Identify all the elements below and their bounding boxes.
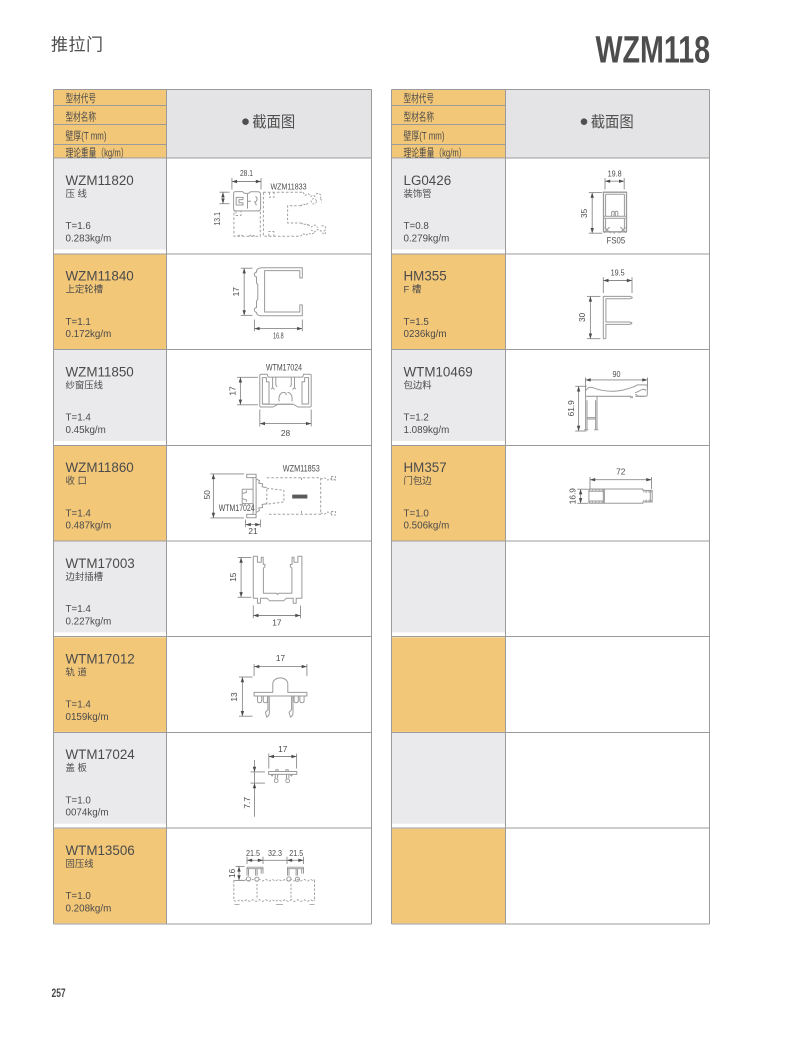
svg-text:型材名称: 型材名称 [66, 109, 97, 123]
svg-text:型材代号: 型材代号 [404, 91, 435, 105]
svg-text:型材代号: 型材代号 [66, 91, 97, 105]
svg-text:0236kg/m: 0236kg/m [404, 329, 447, 340]
svg-text:0159kg/m: 0159kg/m [66, 712, 109, 723]
svg-text:盖 板: 盖 板 [66, 762, 88, 773]
svg-text:WZM11860: WZM11860 [66, 460, 134, 475]
svg-text:0.227kg/m: 0.227kg/m [66, 616, 112, 627]
svg-text:T=1.4: T=1.4 [66, 508, 92, 519]
svg-text:28.1: 28.1 [240, 168, 253, 178]
svg-text:型材名称: 型材名称 [404, 109, 435, 123]
svg-text:包边料: 包边料 [404, 379, 433, 390]
svg-text:72: 72 [616, 467, 626, 477]
svg-text:WTM10469: WTM10469 [404, 364, 473, 379]
svg-text:WTM13506: WTM13506 [66, 843, 135, 858]
svg-text:壁厚(T mm): 壁厚(T mm) [404, 129, 445, 143]
svg-text:61.9: 61.9 [566, 400, 576, 417]
svg-text:T=1.1: T=1.1 [66, 317, 91, 328]
svg-text:1.089kg/m: 1.089kg/m [404, 425, 450, 436]
svg-text:16.8: 16.8 [273, 331, 284, 341]
svg-text:T=1.5: T=1.5 [404, 317, 430, 328]
svg-text:16: 16 [227, 868, 237, 878]
svg-text:17: 17 [272, 618, 282, 628]
svg-text:21.5: 21.5 [289, 848, 303, 858]
svg-text:WTM17024: WTM17024 [66, 747, 136, 762]
svg-text:压 线: 压 线 [66, 188, 88, 199]
svg-text:理论重量（kg/m）: 理论重量（kg/m） [66, 145, 129, 159]
svg-text:16.9: 16.9 [568, 488, 578, 505]
svg-text:WZM11850: WZM11850 [66, 364, 134, 379]
svg-text:32.3: 32.3 [268, 848, 282, 858]
svg-text:T=1.4: T=1.4 [66, 700, 92, 711]
svg-text:21.5: 21.5 [246, 848, 260, 858]
svg-text:0.45kg/m: 0.45kg/m [66, 425, 106, 436]
svg-text:90: 90 [613, 369, 621, 379]
svg-text:35: 35 [579, 208, 589, 218]
svg-text:15: 15 [228, 572, 238, 582]
svg-text:T=1.4: T=1.4 [66, 604, 92, 615]
svg-text:WZM11833: WZM11833 [271, 181, 307, 191]
svg-text:FS05: FS05 [607, 236, 626, 246]
svg-text:WZM11820: WZM11820 [66, 173, 134, 188]
svg-text:截面图: 截面图 [252, 114, 295, 131]
svg-text:21: 21 [248, 526, 258, 536]
svg-text:WZM11853: WZM11853 [283, 464, 320, 474]
svg-text:0.487kg/m: 0.487kg/m [66, 521, 112, 532]
svg-text:截面图: 截面图 [591, 114, 634, 131]
svg-text:28: 28 [281, 428, 291, 438]
svg-text:轨 道: 轨 道 [66, 667, 87, 678]
svg-text:HM355: HM355 [404, 269, 447, 284]
svg-text:0.172kg/m: 0.172kg/m [66, 329, 112, 340]
svg-text:WZM11840: WZM11840 [66, 269, 134, 284]
svg-text:17: 17 [276, 653, 286, 663]
svg-text:0.279kg/m: 0.279kg/m [404, 234, 450, 245]
svg-text:0.208kg/m: 0.208kg/m [66, 903, 112, 914]
svg-text:17: 17 [227, 386, 237, 396]
svg-text:0.506kg/m: 0.506kg/m [404, 521, 450, 532]
svg-text:T=1.2: T=1.2 [404, 413, 429, 424]
svg-text:13.1: 13.1 [212, 212, 222, 226]
svg-text:壁厚(T mm): 壁厚(T mm) [66, 129, 107, 143]
svg-text:30: 30 [577, 312, 587, 322]
svg-text:0.283kg/m: 0.283kg/m [66, 234, 112, 245]
svg-text:7.7: 7.7 [242, 797, 252, 809]
svg-text:边封插槽: 边封插槽 [66, 571, 104, 582]
svg-text:装饰管: 装饰管 [404, 188, 432, 199]
svg-text:T=1.4: T=1.4 [66, 413, 92, 424]
svg-text:门包边: 门包边 [404, 475, 433, 486]
svg-text:推拉门: 推拉门 [51, 36, 104, 55]
svg-text:收 口: 收 口 [66, 475, 87, 486]
svg-text:LG0426: LG0426 [404, 173, 452, 188]
svg-text:HM357: HM357 [404, 460, 447, 475]
svg-text:WTM17024: WTM17024 [266, 362, 302, 372]
svg-text:17: 17 [231, 287, 241, 297]
svg-text:T=1.0: T=1.0 [66, 891, 92, 902]
svg-text:0074kg/m: 0074kg/m [66, 808, 109, 819]
svg-text:T=1.0: T=1.0 [66, 795, 92, 806]
svg-text:固压线: 固压线 [66, 858, 95, 869]
svg-text:纱窗压线: 纱窗压线 [66, 379, 104, 390]
svg-text:F 槽: F 槽 [404, 284, 422, 295]
svg-text:上定轮槽: 上定轮槽 [66, 284, 104, 295]
svg-text:50: 50 [202, 490, 212, 500]
svg-text:T=1.0: T=1.0 [404, 508, 430, 519]
svg-text:17: 17 [278, 744, 288, 754]
svg-text:WTM17024: WTM17024 [219, 503, 255, 513]
svg-text:WTM17003: WTM17003 [66, 556, 135, 571]
svg-text:T=1.6: T=1.6 [66, 221, 92, 232]
svg-text:WZM118: WZM118 [596, 29, 711, 72]
svg-text:WTM17012: WTM17012 [66, 652, 135, 667]
svg-text:T=0.8: T=0.8 [404, 221, 430, 232]
svg-text:理论重量（kg/m）: 理论重量（kg/m） [404, 145, 467, 159]
svg-text:13: 13 [229, 692, 239, 702]
svg-text:257: 257 [52, 988, 66, 1001]
svg-text:19.5: 19.5 [611, 267, 625, 277]
svg-text:19.8: 19.8 [608, 168, 622, 178]
